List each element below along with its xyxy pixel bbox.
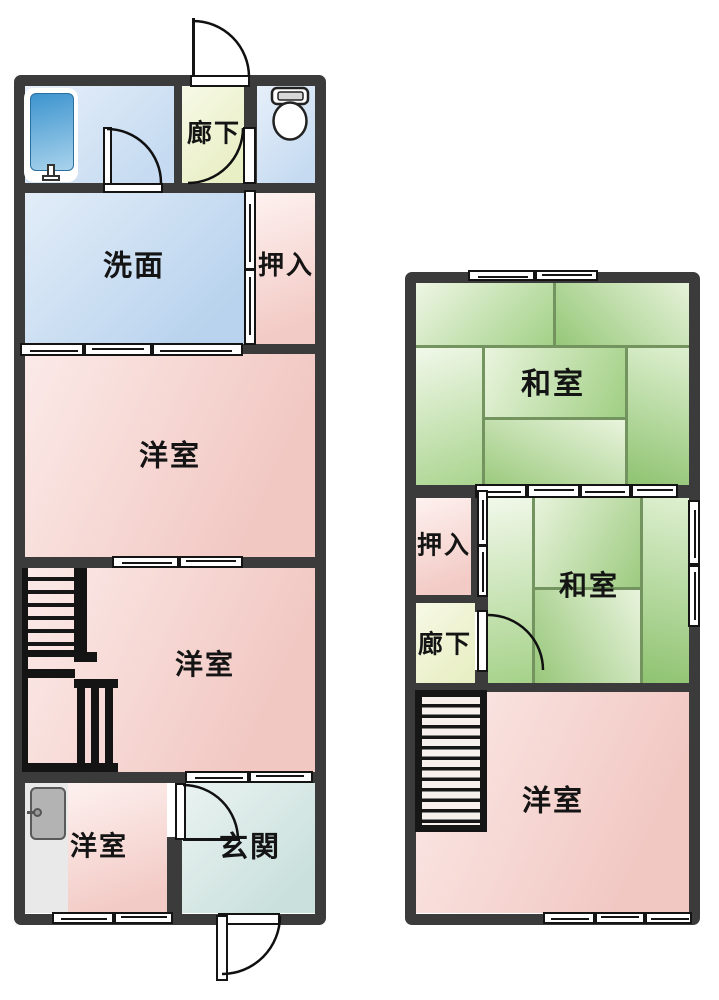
door-leaf-toilet xyxy=(243,127,256,184)
door-knob-stem xyxy=(27,811,34,814)
door-opening-front xyxy=(190,75,250,87)
room-label-washroom: 洗面 xyxy=(103,252,165,281)
window-2f-top xyxy=(468,270,598,281)
sliding-door-washroom xyxy=(20,343,243,356)
room-label-entrance: 玄関 xyxy=(219,833,281,862)
room-label-western2: 洋室 xyxy=(175,651,235,679)
door-opening-bath xyxy=(103,183,163,193)
room-label-western1: 洋室 xyxy=(139,442,201,471)
room-label-corridor-1f: 廊下 xyxy=(187,121,241,146)
sliding-door-western1-2 xyxy=(112,556,243,568)
sliding-door-closet-2f xyxy=(477,490,488,597)
door-leaf-corridor-2f xyxy=(477,610,488,672)
room-label-closet-1f: 押入 xyxy=(258,253,314,279)
staircase-2f xyxy=(415,690,487,832)
floor-plan: 廊下 洗面 押入 洋室 洋室 洋室 玄関 xyxy=(0,0,719,1000)
room-label-western3: 洋室 xyxy=(70,834,128,861)
room-label-closet-2f: 押入 xyxy=(417,533,471,558)
room-label-japanese1: 和室 xyxy=(521,370,585,400)
room-label-corridor-2f: 廊下 xyxy=(418,632,472,657)
door-leaf-front xyxy=(192,18,195,76)
sliding-door-closet-1f xyxy=(244,190,256,345)
bathtub-water xyxy=(30,93,74,171)
room-label-western-2f: 洋室 xyxy=(522,787,584,816)
window-bottom-left xyxy=(52,912,173,924)
room-label-japanese2: 和室 xyxy=(559,572,619,600)
bathtub-faucet-base xyxy=(42,175,60,181)
door-arc-front xyxy=(193,21,249,77)
window-entrance-top xyxy=(185,771,313,783)
door-knob xyxy=(33,808,42,817)
door-leaf-bath xyxy=(103,127,112,185)
door-leaf-entrance-hall xyxy=(175,783,186,840)
door-leaf-main-entrance xyxy=(216,915,228,981)
sliding-door-fusuma xyxy=(475,484,678,498)
window-2f-bottom xyxy=(543,912,692,924)
window-2f-right xyxy=(688,500,700,627)
